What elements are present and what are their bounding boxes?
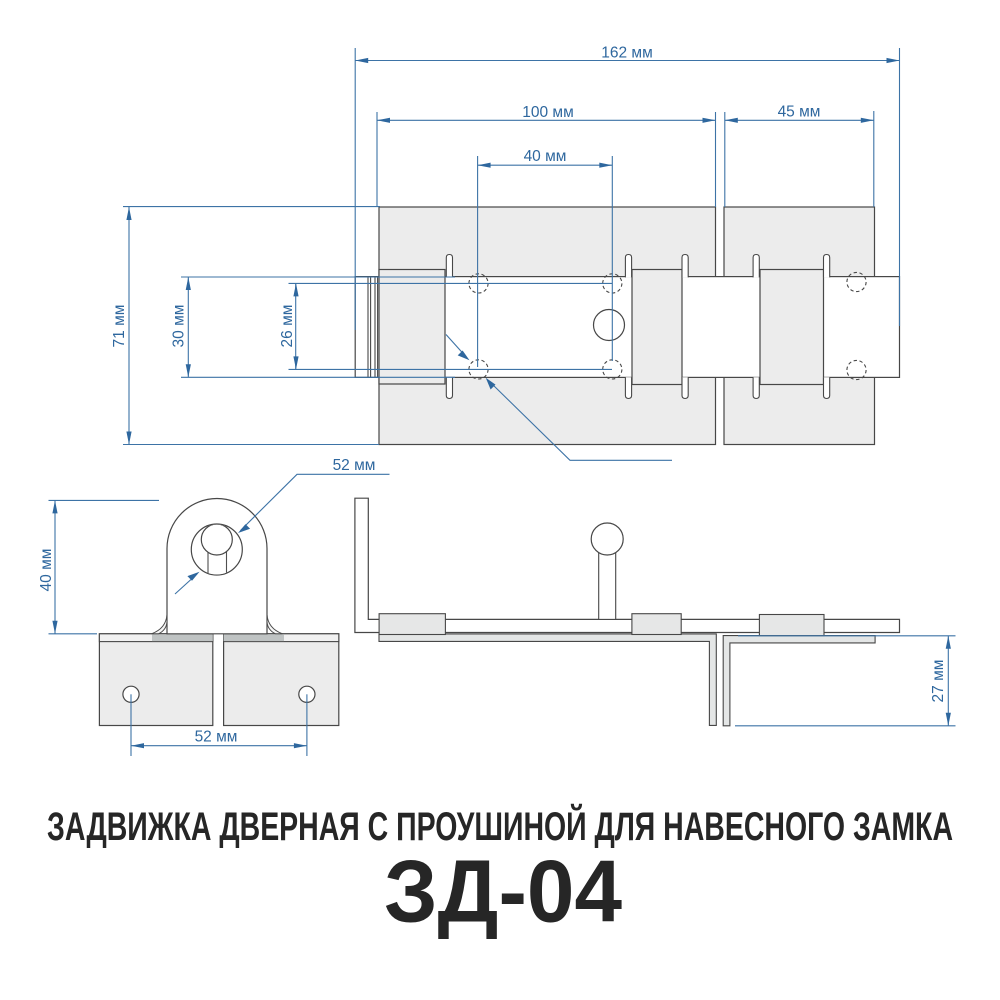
svg-text:52 мм: 52 мм — [333, 457, 376, 474]
svg-text:26 мм: 26 мм — [279, 305, 296, 348]
svg-text:45 мм: 45 мм — [778, 104, 821, 121]
svg-text:162 мм: 162 мм — [601, 45, 652, 62]
svg-text:71 мм: 71 мм — [111, 305, 128, 348]
svg-text:27 мм: 27 мм — [930, 660, 947, 703]
svg-text:40 мм: 40 мм — [38, 549, 55, 592]
svg-text:52 мм: 52 мм — [195, 729, 238, 746]
svg-text:ЗД-04: ЗД-04 — [384, 842, 622, 941]
svg-text:40 мм: 40 мм — [524, 148, 567, 165]
svg-text:30 мм: 30 мм — [171, 305, 188, 348]
svg-text:100 мм: 100 мм — [522, 104, 573, 121]
